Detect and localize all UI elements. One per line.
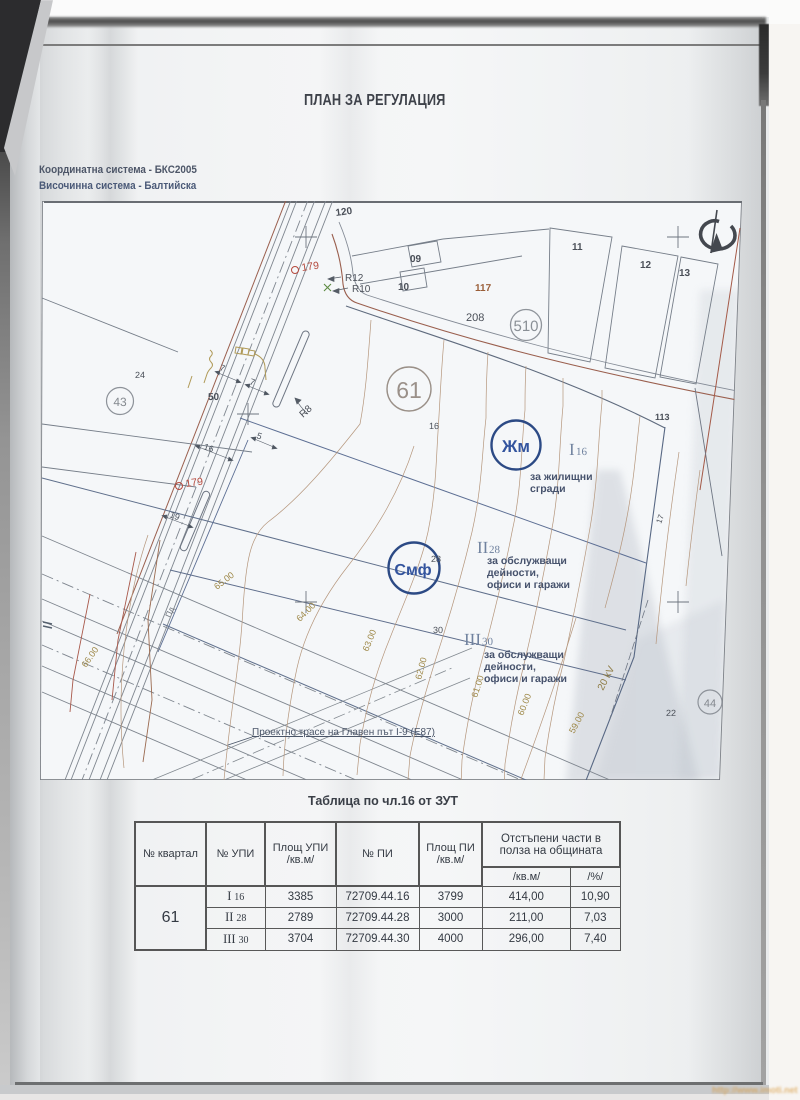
svg-text:III: III bbox=[464, 630, 481, 649]
svg-text:офиси и гаражи: офиси и гаражи bbox=[484, 673, 567, 685]
svg-text:16: 16 bbox=[429, 421, 439, 431]
svg-text:R12: R12 bbox=[345, 273, 364, 284]
svg-text:43: 43 bbox=[113, 395, 127, 409]
svg-text:сгради: сгради bbox=[530, 483, 566, 495]
svg-text:117: 117 bbox=[475, 283, 492, 294]
svg-text:28: 28 bbox=[431, 554, 441, 564]
svg-text:09: 09 bbox=[410, 254, 422, 265]
svg-text:дейности,: дейности, bbox=[484, 661, 536, 673]
svg-text:179: 179 bbox=[301, 260, 320, 274]
svg-text:13: 13 bbox=[679, 268, 691, 279]
svg-text:179: 179 bbox=[185, 476, 204, 490]
svg-text:61: 61 bbox=[396, 377, 422, 403]
svg-text:I: I bbox=[569, 440, 575, 459]
svg-text:24: 24 bbox=[135, 370, 145, 380]
svg-text:30: 30 bbox=[433, 625, 443, 635]
svg-text:за обслужващи: за обслужващи bbox=[487, 555, 567, 567]
svg-text:30: 30 bbox=[482, 636, 494, 648]
svg-text:510: 510 bbox=[513, 318, 538, 335]
svg-text:Жм: Жм bbox=[501, 437, 530, 456]
svg-text:за обслужващи: за обслужващи bbox=[484, 649, 564, 661]
svg-text:11: 11 bbox=[572, 242, 583, 253]
svg-text:44: 44 bbox=[704, 698, 716, 710]
svg-text:10: 10 bbox=[398, 282, 410, 293]
svg-text:50: 50 bbox=[208, 392, 220, 403]
svg-text:113: 113 bbox=[655, 412, 670, 422]
svg-text:офиси и гаражи: офиси и гаражи bbox=[487, 579, 570, 591]
svg-text:за жилищни: за жилищни bbox=[530, 471, 593, 483]
svg-text:R10: R10 bbox=[352, 284, 371, 295]
svg-text:Проектно трасе на Главен път I: Проектно трасе на Главен път I-9 (Е87) bbox=[252, 727, 435, 738]
svg-text:22: 22 bbox=[666, 708, 676, 718]
svg-text:16: 16 bbox=[576, 446, 588, 458]
svg-text:208: 208 bbox=[466, 312, 484, 324]
svg-text:Смф: Смф bbox=[394, 562, 431, 579]
svg-text:12: 12 bbox=[640, 260, 652, 271]
svg-text:дейности,: дейности, bbox=[487, 567, 539, 579]
